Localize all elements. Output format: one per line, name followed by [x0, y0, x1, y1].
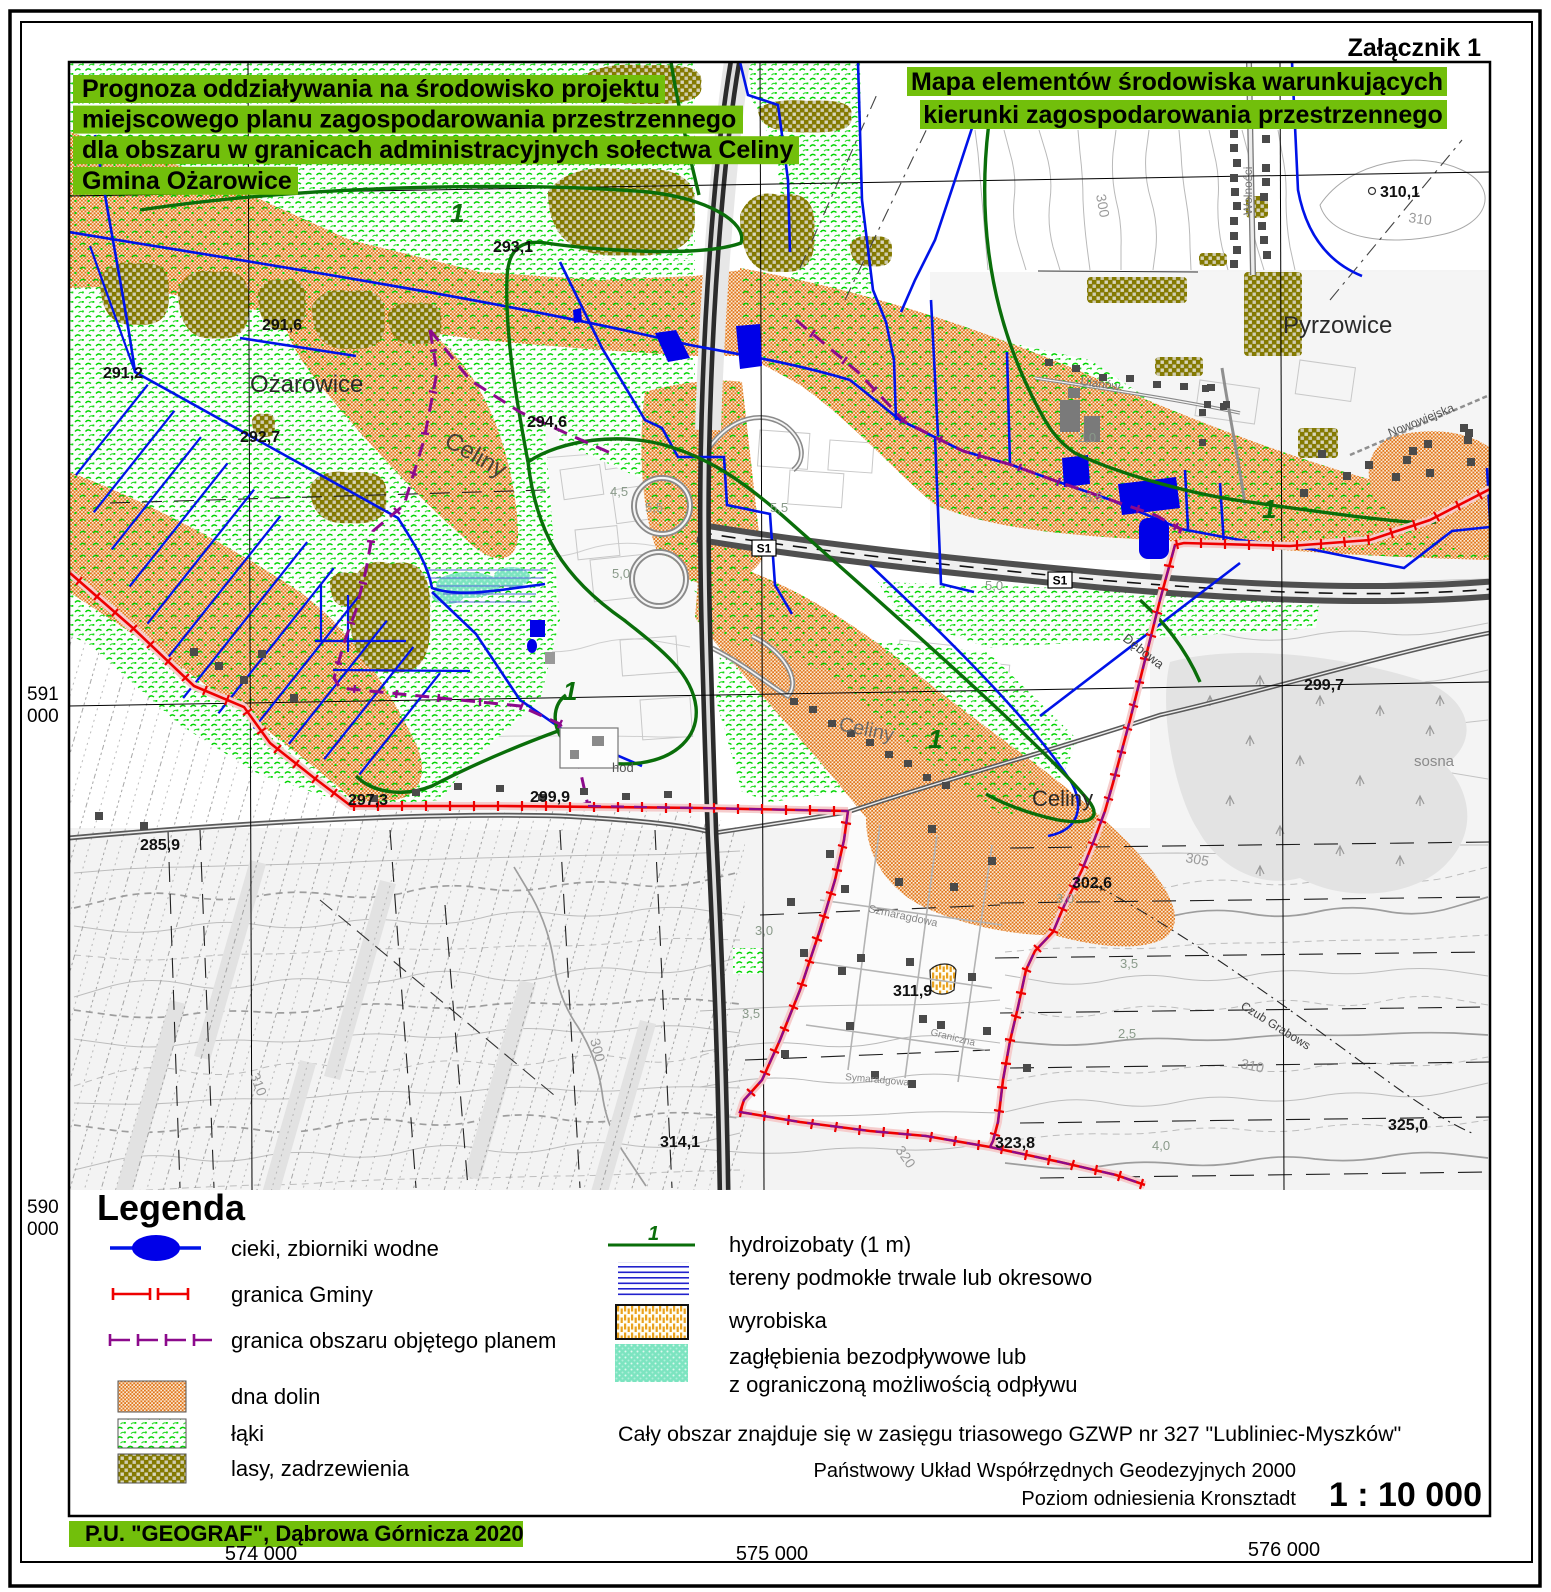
- svg-text:miejscowego planu zagospodarow: miejscowego planu zagospodarowania przes…: [82, 106, 736, 134]
- svg-text:1: 1: [648, 1223, 659, 1245]
- svg-text:sosna: sosna: [1414, 753, 1455, 770]
- svg-text:4,0: 4,0: [1152, 1138, 1170, 1153]
- svg-text:297,3: 297,3: [348, 792, 388, 809]
- svg-text:dla obszaru w granicach admini: dla obszaru w granicach administracyjnyc…: [82, 136, 793, 164]
- svg-text:Państwowy Układ Współrzędnych: Państwowy Układ Współrzędnych Geodezyjny…: [814, 1460, 1296, 1482]
- svg-text:kierunki zagospodarowania prze: kierunki zagospodarowania przestrzennego: [923, 101, 1443, 129]
- svg-text:285,9: 285,9: [140, 837, 180, 854]
- svg-text:4,5: 4,5: [610, 484, 628, 499]
- svg-text:311,9: 311,9: [893, 983, 932, 1000]
- svg-text:294,6: 294,6: [527, 414, 567, 431]
- svg-text:1: 1: [928, 724, 942, 754]
- svg-text:zagłębienia bezodpływowe lub: zagłębienia bezodpływowe lub: [729, 1344, 1026, 1369]
- svg-text:310: 310: [1408, 209, 1434, 228]
- svg-text:Cały obszar znajduje się w zas: Cały obszar znajduje się w zasięgu trias…: [618, 1422, 1401, 1446]
- svg-text:325,0: 325,0: [1388, 1117, 1428, 1134]
- svg-text:575 000: 575 000: [736, 1543, 808, 1565]
- svg-text:5,5: 5,5: [645, 500, 663, 515]
- svg-text:000: 000: [27, 1219, 59, 1240]
- svg-text:granica Gminy: granica Gminy: [231, 1282, 373, 1307]
- svg-text:hod: hod: [612, 760, 634, 775]
- svg-text:299,7: 299,7: [1304, 677, 1344, 694]
- svg-text:590: 590: [27, 1197, 59, 1218]
- svg-text:1 : 10 000: 1 : 10 000: [1329, 1476, 1482, 1514]
- svg-text:2,0: 2,0: [1078, 430, 1096, 445]
- svg-text:Legenda: Legenda: [97, 1187, 246, 1228]
- svg-text:z ograniczoną możliwością odpł: z ograniczoną możliwością odpływu: [729, 1372, 1078, 1397]
- svg-text:łąki: łąki: [231, 1421, 264, 1446]
- svg-text:Prognoza oddziaływania na środ: Prognoza oddziaływania na środowisko pro…: [82, 75, 660, 103]
- svg-text:000: 000: [27, 706, 59, 727]
- svg-text:S1: S1: [1053, 574, 1068, 588]
- svg-text:5,0: 5,0: [612, 566, 630, 581]
- svg-text:tereny podmokłe trwale lub okr: tereny podmokłe trwale lub okresowo: [729, 1265, 1092, 1290]
- svg-text:3,5: 3,5: [1120, 956, 1138, 971]
- svg-text:lasy, zadrzewienia: lasy, zadrzewienia: [231, 1456, 410, 1481]
- svg-text:591: 591: [27, 684, 59, 705]
- svg-text:5,5: 5,5: [1085, 490, 1103, 505]
- svg-text:293,1: 293,1: [493, 239, 533, 256]
- svg-text:S1: S1: [757, 542, 772, 556]
- svg-text:299,9: 299,9: [530, 789, 570, 806]
- svg-text:1: 1: [563, 676, 577, 706]
- svg-text:Ożarowice: Ożarowice: [250, 371, 363, 398]
- svg-text:291,2: 291,2: [103, 365, 143, 382]
- svg-text:3,5: 3,5: [742, 1006, 760, 1021]
- svg-text:3,0: 3,0: [1056, 891, 1074, 906]
- svg-text:1: 1: [450, 198, 464, 228]
- svg-text:1: 1: [1262, 494, 1276, 524]
- svg-text:5,0: 5,0: [985, 578, 1003, 593]
- svg-text:Gmina Ożarowice: Gmina Ożarowice: [82, 167, 292, 195]
- svg-text:dna dolin: dna dolin: [231, 1384, 320, 1409]
- svg-text:310,1: 310,1: [1380, 184, 1420, 201]
- svg-text:574 000: 574 000: [225, 1543, 297, 1565]
- svg-text:granica obszaru objętego plane: granica obszaru objętego planem: [231, 1328, 556, 1353]
- svg-text:576 000: 576 000: [1248, 1539, 1320, 1561]
- svg-text:Poziom odniesienia Kronsztadt: Poziom odniesienia Kronsztadt: [1021, 1488, 1296, 1510]
- svg-text:P.U. "GEOGRAF", Dąbrowa Górnic: P.U. "GEOGRAF", Dąbrowa Górnicza 2020: [85, 1521, 524, 1546]
- svg-text:291,6: 291,6: [262, 317, 302, 334]
- svg-text:292,7: 292,7: [240, 429, 280, 446]
- svg-text:cieki, zbiorniki wodne: cieki, zbiorniki wodne: [231, 1236, 439, 1261]
- svg-text:Załącznik 1: Załącznik 1: [1348, 34, 1481, 62]
- svg-text:Pyrzowice: Pyrzowice: [1283, 312, 1392, 339]
- svg-text:5,5: 5,5: [770, 500, 788, 515]
- svg-text:2,5: 2,5: [1118, 1026, 1136, 1041]
- svg-text:3,0: 3,0: [755, 923, 773, 938]
- svg-text:323,8: 323,8: [995, 1135, 1035, 1152]
- svg-text:Celiny: Celiny: [1032, 786, 1093, 811]
- svg-text:314,1: 314,1: [660, 1134, 700, 1151]
- svg-text:302,6: 302,6: [1072, 875, 1112, 892]
- svg-text:hydroizobaty (1 m): hydroizobaty (1 m): [729, 1232, 911, 1257]
- svg-text:wyrobiska: wyrobiska: [728, 1308, 828, 1333]
- svg-text:Mapa elementów środowiska waru: Mapa elementów środowiska warunkujących: [911, 68, 1443, 96]
- svg-text:Wolności: Wolności: [1241, 167, 1255, 215]
